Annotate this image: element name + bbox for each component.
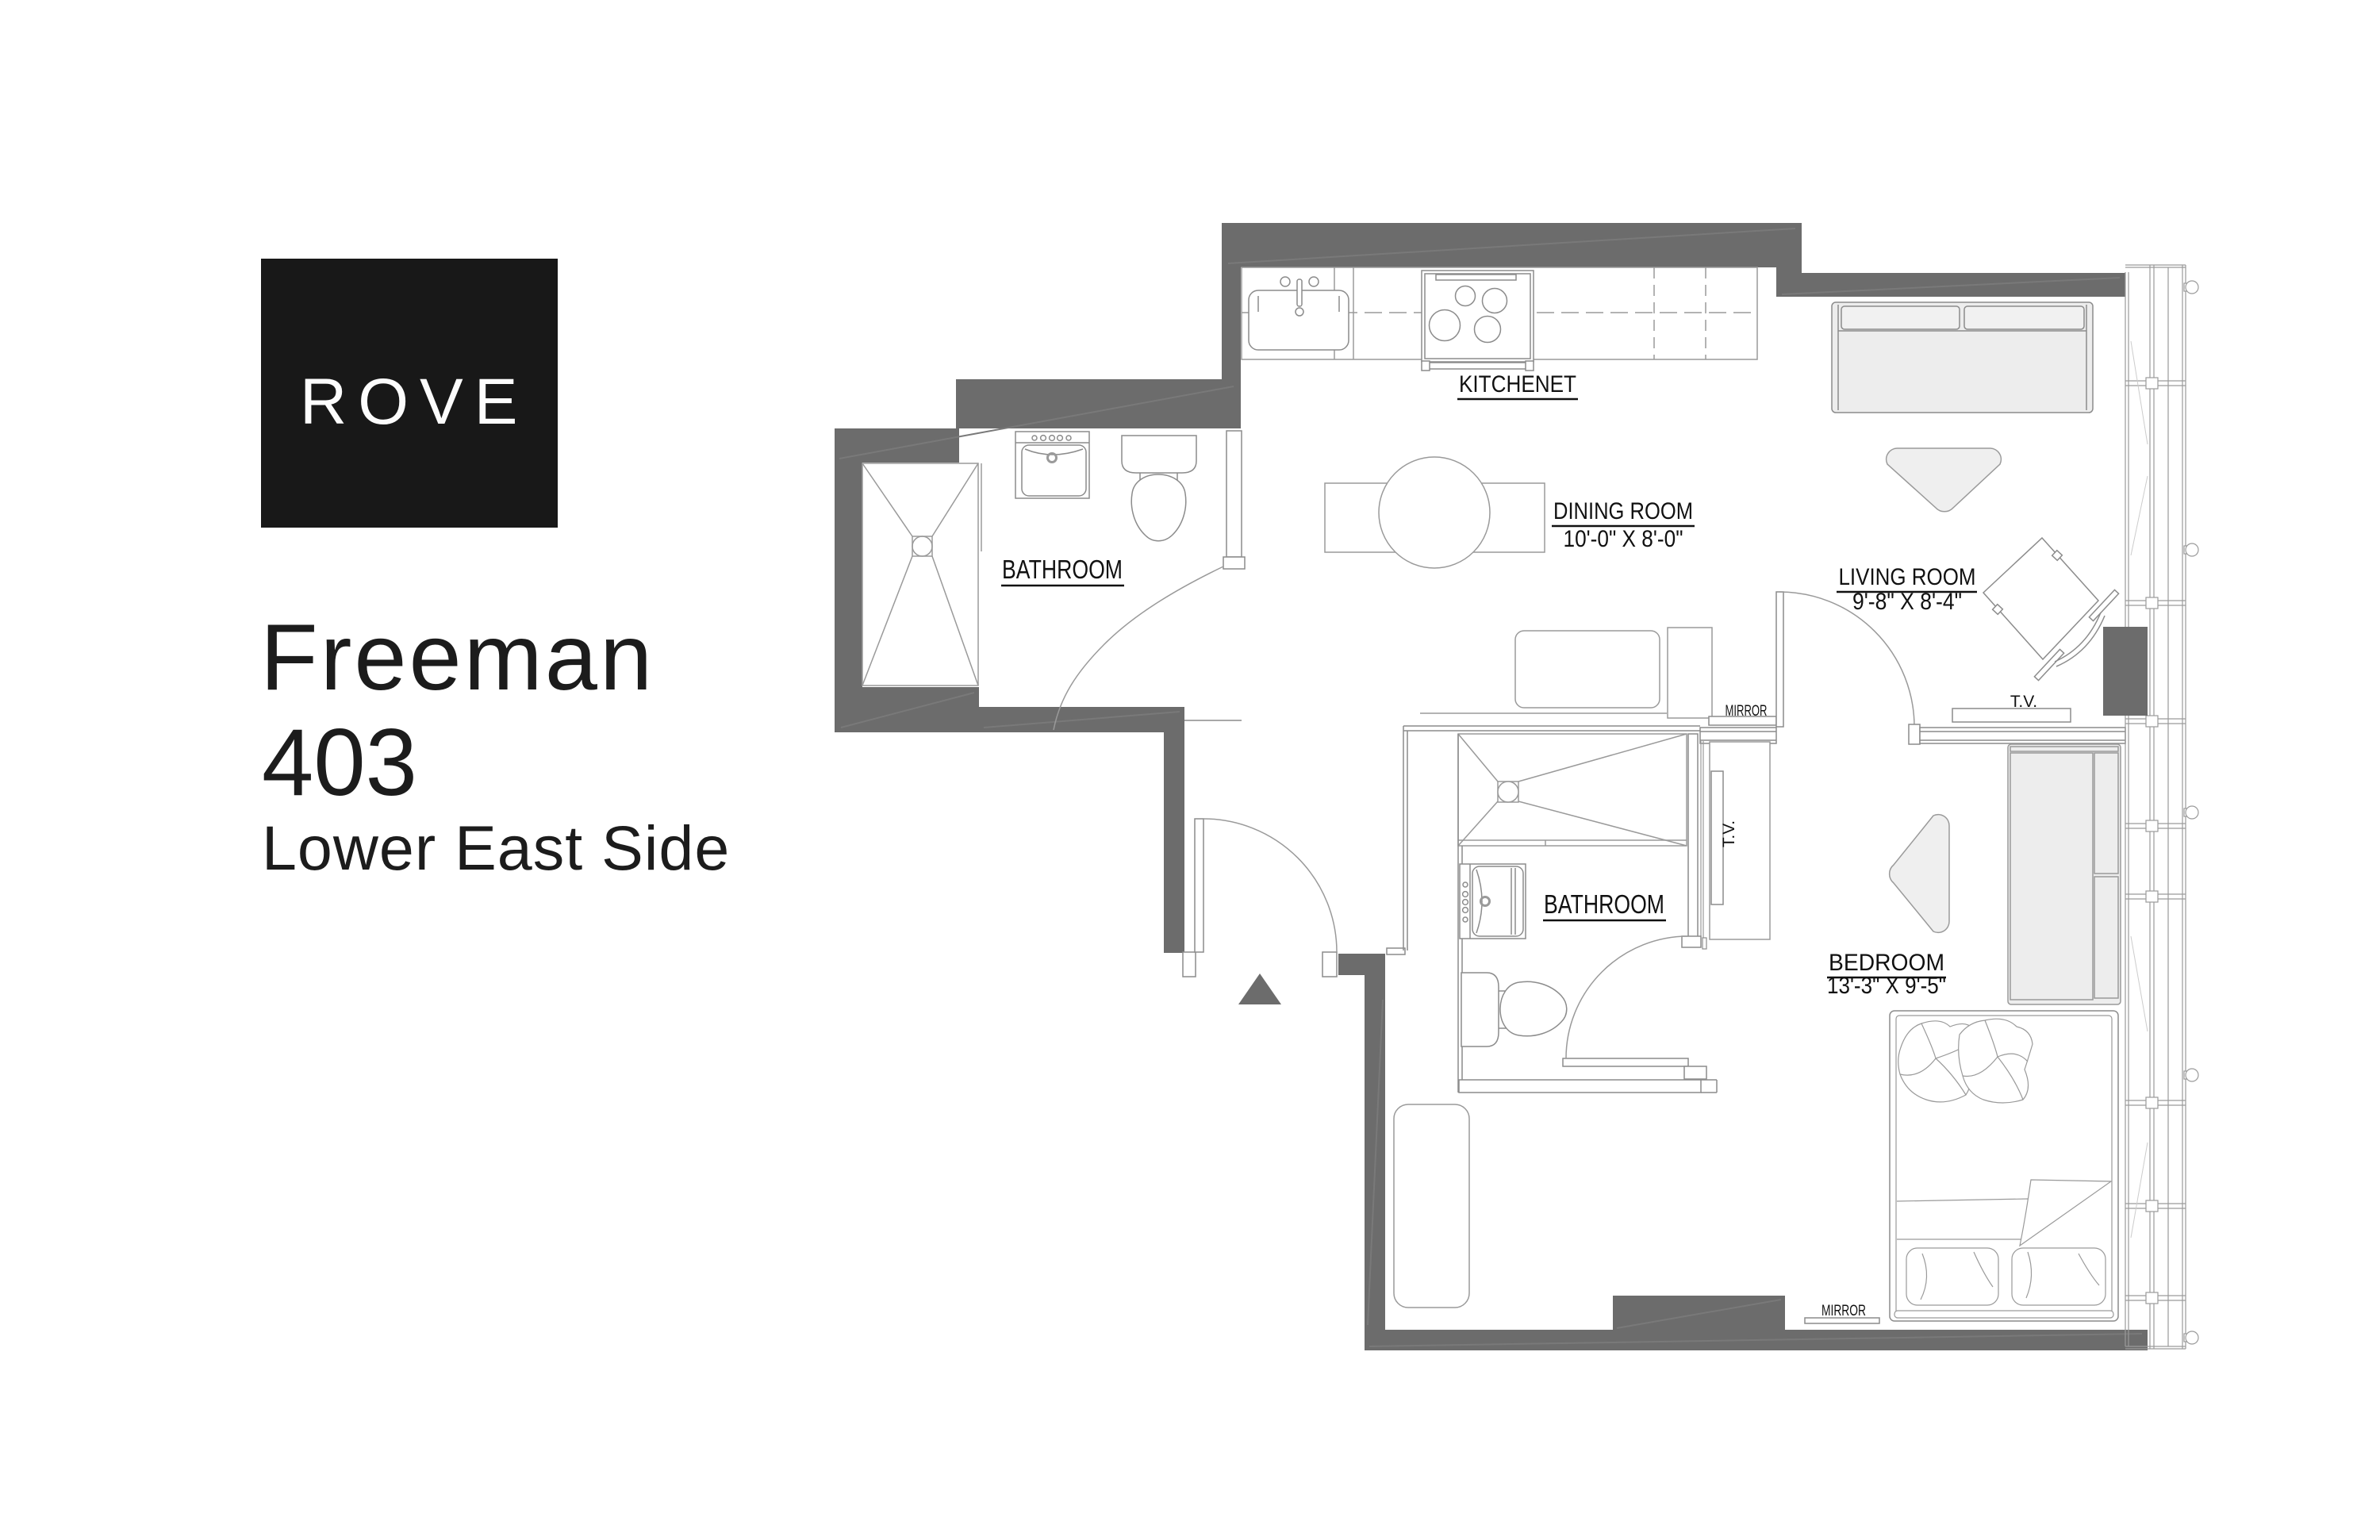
svg-text:Lower East Side: Lower East Side (262, 812, 730, 883)
svg-text:DINING ROOM: DINING ROOM (1553, 498, 1693, 524)
svg-text:T.V.: T.V. (1720, 820, 1738, 847)
svg-text:MIRROR: MIRROR (1821, 1303, 1866, 1319)
svg-text:LIVING ROOM: LIVING ROOM (1839, 564, 1976, 590)
svg-text:BATHROOM: BATHROOM (1002, 555, 1123, 584)
svg-text:403: 403 (262, 709, 417, 816)
svg-text:T.V.: T.V. (2010, 693, 2037, 711)
svg-text:9'-8" X 8'-4": 9'-8" X 8'-4" (1852, 589, 1962, 615)
svg-text:BATHROOM: BATHROOM (1544, 889, 1664, 919)
svg-text:13'-3" X 9'-5": 13'-3" X 9'-5" (1827, 973, 1946, 999)
svg-text:ROVE: ROVE (300, 366, 528, 438)
svg-text:Freeman: Freeman (260, 605, 654, 710)
svg-text:KITCHENET: KITCHENET (1459, 371, 1576, 397)
svg-text:10'-0" X 8'-0": 10'-0" X 8'-0" (1564, 526, 1683, 552)
